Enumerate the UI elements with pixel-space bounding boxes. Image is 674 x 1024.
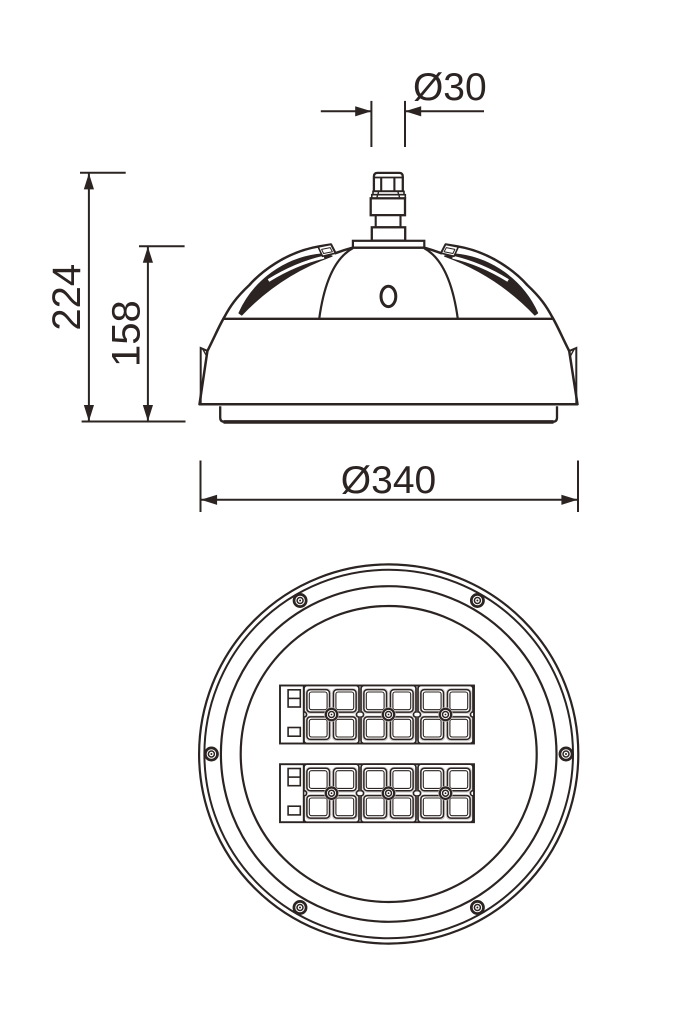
svg-text:158: 158 [104,300,148,367]
svg-text:224: 224 [45,264,89,331]
svg-text:Ø30: Ø30 [413,66,487,109]
svg-text:Ø340: Ø340 [341,459,436,502]
